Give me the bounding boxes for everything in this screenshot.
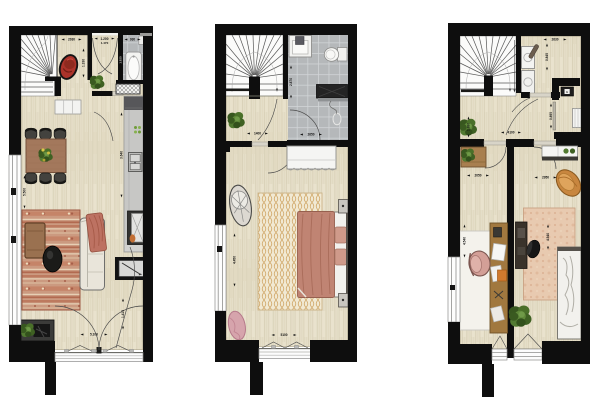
svg-text:1400: 1400 (254, 132, 261, 136)
svg-text:1.415: 1.415 (121, 310, 125, 318)
svg-text:3.640: 3.640 (120, 151, 124, 159)
svg-text:4.540: 4.540 (546, 233, 550, 241)
svg-text:2050: 2050 (474, 174, 481, 178)
svg-text:G: G (566, 90, 568, 94)
svg-text:2030: 2030 (68, 38, 75, 42)
svg-text:2950: 2950 (542, 176, 549, 180)
svg-text:5100: 5100 (280, 333, 287, 337)
svg-text:2650: 2650 (307, 133, 314, 137)
svg-text:4100: 4100 (507, 131, 514, 135)
svg-text:0.845: 0.845 (545, 53, 549, 61)
svg-text:2630: 2630 (551, 38, 558, 42)
svg-text:1.920: 1.920 (119, 56, 123, 64)
svg-text:930: 930 (563, 132, 569, 136)
svg-text:1.880: 1.880 (467, 123, 471, 131)
svg-text:5.500: 5.500 (23, 188, 27, 196)
svg-text:1.470: 1.470 (101, 41, 109, 45)
svg-text:1.200: 1.200 (101, 37, 109, 41)
svg-text:1.330: 1.330 (82, 59, 86, 67)
svg-text:4.540: 4.540 (463, 237, 467, 245)
svg-text:5.100: 5.100 (90, 333, 98, 337)
svg-text:0.895: 0.895 (549, 112, 553, 120)
svg-text:2.870: 2.870 (289, 78, 293, 86)
svg-text:930: 930 (130, 38, 136, 42)
svg-text:4.450: 4.450 (233, 256, 237, 264)
